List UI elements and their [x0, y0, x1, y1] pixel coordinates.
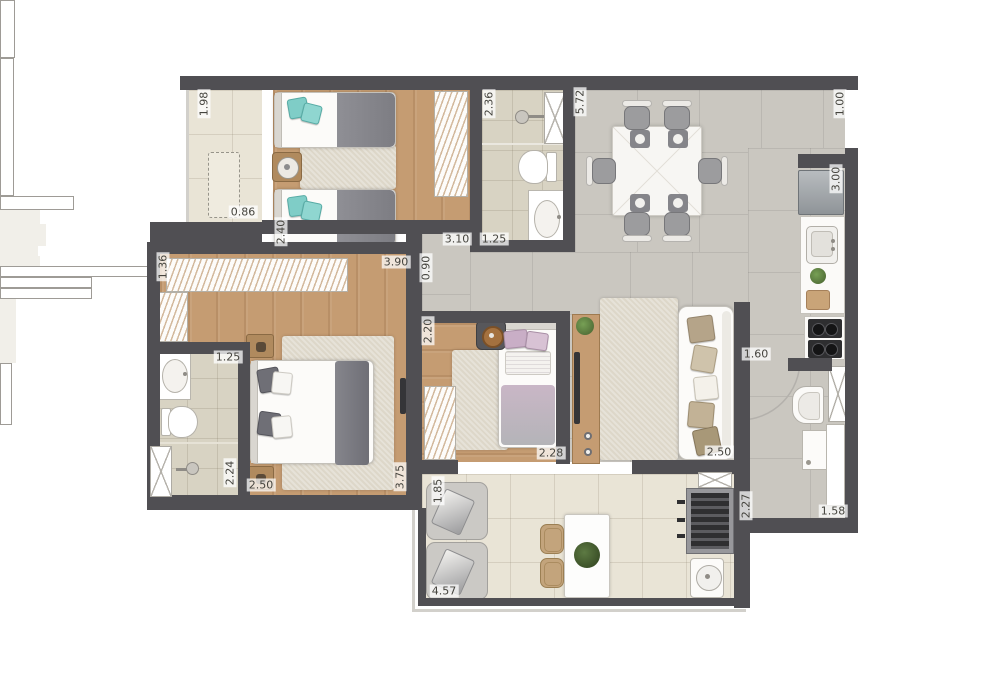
entry-door-leaf: [0, 363, 12, 425]
dim-label: 2.50: [705, 446, 734, 459]
burner-icon: [812, 343, 825, 356]
dining-table: [612, 126, 702, 216]
rack-knob: [584, 432, 592, 440]
wall-single-east: [556, 311, 570, 464]
wall-ensuite-east: [238, 352, 250, 497]
twin-room-wardrobe: [434, 91, 468, 197]
dim-label: 0.86: [229, 206, 258, 219]
placemat: [630, 130, 650, 148]
living-rug: [600, 298, 678, 460]
dim-label: 4.57: [430, 585, 459, 598]
dining-chair: [624, 106, 650, 130]
grill-tool-icon: [677, 534, 685, 538]
grill-tool-icon: [677, 518, 685, 522]
terrace-sink: [690, 558, 724, 598]
window-twin-balcony: [0, 58, 14, 196]
single-room-wardrobe: [424, 386, 456, 460]
toilet-icon: [518, 150, 548, 184]
laundry-tub-icon: [792, 386, 824, 424]
dim-label: 2.40: [275, 218, 288, 247]
blanket: [501, 385, 555, 445]
sofa-pillow: [690, 344, 718, 374]
dining-chair: [698, 158, 722, 184]
sofa-back: [722, 311, 731, 457]
burner-grid: [808, 319, 842, 338]
wall-right: [845, 148, 858, 533]
washer-knob: [806, 460, 811, 465]
burner-icon: [825, 343, 838, 356]
dim-label: 1.85: [432, 477, 445, 506]
blanket: [337, 190, 395, 245]
chair-back: [662, 235, 692, 242]
master-closet-top: [166, 258, 348, 292]
placemat: [630, 194, 650, 212]
dining-chair: [624, 212, 650, 236]
dim-label: 1.98: [198, 90, 211, 119]
dining-chair: [664, 212, 690, 236]
slab-edge: [412, 609, 746, 612]
faucet-icon: [831, 247, 835, 251]
chair-cushion: [544, 528, 562, 552]
dim-label: 3.90: [382, 256, 411, 269]
sliding-door-panel: [0, 277, 92, 288]
entry-door-gap: [0, 299, 16, 363]
dim-label: 2.28: [537, 447, 566, 460]
burner-icon: [825, 323, 838, 336]
sink-bowl: [811, 231, 833, 257]
placemat: [668, 194, 688, 212]
sofa-pillow: [687, 401, 715, 429]
dim-label: 2.50: [247, 479, 276, 492]
dim-label: 1.25: [480, 233, 509, 246]
placemat: [668, 130, 688, 148]
twin-room-rug: [300, 145, 396, 189]
faucet-icon: [557, 215, 561, 219]
faucet-icon: [183, 372, 187, 376]
window-small-balcony: [0, 196, 74, 210]
blanket: [337, 93, 395, 147]
sofa-pillow: [686, 314, 715, 343]
slab-edge: [412, 508, 415, 612]
dim-label: 0.90: [420, 254, 433, 283]
nightstand-lamp: [256, 342, 266, 352]
tub-bowl: [798, 392, 820, 420]
plant-icon: [810, 268, 826, 284]
white-pillow: [505, 351, 551, 375]
grill-tool-icon: [677, 500, 685, 504]
dim-label: 1.58: [819, 505, 848, 518]
rack-knob: [584, 448, 592, 456]
shower-arm: [528, 115, 544, 118]
lilac-pillow: [525, 331, 549, 352]
round-nightstand: [272, 152, 302, 182]
wall-top: [180, 76, 858, 90]
dim-label: 2.27: [740, 492, 753, 521]
wall-terrace-left: [408, 460, 458, 474]
sliding-door-panel: [0, 288, 92, 299]
headboard: [499, 323, 557, 330]
wicker-chair: [540, 558, 564, 588]
dim-label: 1.00: [834, 90, 847, 119]
ensuite-sink-counter: [157, 350, 191, 400]
drain-icon: [705, 574, 710, 579]
master-tv-icon: [400, 378, 406, 414]
throw-blanket: [335, 361, 369, 465]
sink-basin: [162, 359, 188, 393]
wall-service-bottom: [750, 518, 858, 533]
grill-slats: [691, 493, 729, 549]
cutting-board-icon: [806, 290, 830, 310]
sink-basin: [534, 200, 560, 238]
sink-counter: [528, 190, 566, 246]
door-twin-room: [0, 210, 40, 224]
kitchen-sink-icon: [806, 226, 838, 264]
wall-under-balcony: [150, 222, 262, 242]
plate-icon: [673, 134, 683, 144]
balcony-rail: [186, 90, 189, 228]
white-pillow: [271, 415, 293, 439]
cooktop: [804, 316, 845, 360]
terrace-shelf: [698, 472, 732, 488]
terrace-rail-bottom: [418, 598, 740, 606]
chair-cushion: [544, 562, 562, 586]
sofa-pillow: [693, 375, 719, 401]
chair-back: [622, 235, 652, 242]
nightstand-lamp: [284, 164, 290, 170]
wicker-chair: [540, 524, 564, 554]
terrace-rail-left: [418, 508, 426, 606]
faucet-icon: [831, 239, 835, 243]
door-ensuite: [0, 256, 40, 266]
cabinet-strip: [826, 424, 845, 506]
floor-plan: 1.98 0.86 2.40 3.10 1.25 2.36 5.72 1.00 …: [0, 0, 1000, 692]
dim-label: 1.36: [157, 253, 170, 282]
dining-chair: [592, 158, 616, 184]
nightstand: [246, 334, 274, 358]
toilet-icon: [168, 406, 198, 438]
plate-icon: [635, 134, 645, 144]
burner-icon: [812, 323, 825, 336]
dim-label: 2.24: [224, 459, 237, 488]
hall-strip-floor: [470, 252, 575, 311]
burner-grid: [808, 340, 842, 358]
dim-label: 1.25: [214, 351, 243, 364]
door-bathroom: [0, 236, 46, 246]
dim-label: 2.36: [483, 90, 496, 119]
door-single-room: [0, 246, 38, 256]
chair-back: [721, 156, 728, 186]
shower-divider: [157, 442, 240, 444]
dim-label: 5.72: [574, 88, 587, 117]
grill: [686, 488, 734, 554]
dim-label: 3.75: [394, 463, 407, 492]
window-right-opening: [0, 0, 15, 58]
plant-icon: [574, 542, 600, 568]
wall-master-south: [147, 495, 420, 510]
headboard: [275, 93, 282, 147]
plate-icon: [673, 198, 683, 208]
shower-head-icon: [515, 110, 529, 124]
plant-icon: [576, 317, 594, 335]
wall-stove-stub: [788, 358, 832, 371]
dim-label: 2.20: [422, 317, 435, 346]
dim-label: 1.60: [742, 348, 771, 361]
tv-icon: [574, 352, 580, 424]
white-pillow: [271, 371, 293, 395]
dim-label: 3.00: [830, 165, 843, 194]
dim-label: 3.10: [443, 233, 472, 246]
round-side-table: [476, 320, 506, 350]
table-decor: [489, 333, 494, 338]
dining-chair: [664, 106, 690, 130]
shower-head-icon: [186, 462, 199, 475]
plate-icon: [635, 198, 645, 208]
glass-cabinet: [150, 446, 172, 497]
door-master: [0, 224, 46, 236]
washing-machine-icon: [802, 430, 827, 470]
